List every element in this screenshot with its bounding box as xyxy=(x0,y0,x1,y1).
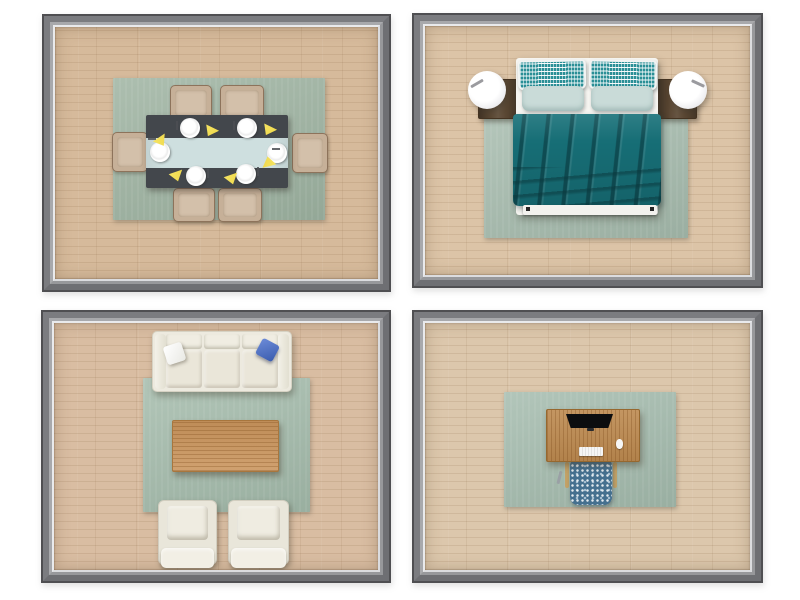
wood-floor xyxy=(55,27,378,279)
office-chair xyxy=(570,458,612,505)
plate xyxy=(236,164,256,184)
foot-rail-corner xyxy=(650,207,654,211)
armchair-back-cushion xyxy=(161,548,214,568)
living-room-panel xyxy=(41,310,391,583)
teal-blanket xyxy=(513,114,661,206)
cutlery-icon xyxy=(272,148,280,150)
monitor-stand xyxy=(587,428,594,431)
plate xyxy=(150,142,170,162)
dining-chair xyxy=(218,188,262,222)
armchair xyxy=(158,500,217,565)
bed-foot-rail xyxy=(523,205,657,215)
lamp-stem-icon xyxy=(691,79,705,88)
dining-room-panel xyxy=(42,14,391,292)
sofa-arm xyxy=(155,334,166,389)
dining-chair xyxy=(173,188,215,222)
wood-floor xyxy=(425,323,750,570)
chair-armrest xyxy=(613,462,617,488)
keyboard xyxy=(579,447,603,456)
armchair-seat xyxy=(237,506,280,540)
home-office-panel xyxy=(412,310,763,583)
wood-floor xyxy=(425,26,750,275)
plate xyxy=(180,118,200,138)
sofa xyxy=(152,331,292,392)
dining-chair xyxy=(112,132,148,172)
cutlery-icon xyxy=(148,138,156,140)
mouse xyxy=(616,439,623,449)
foot-rail-corner xyxy=(526,207,530,211)
chair-armrest xyxy=(565,462,569,488)
table-lamp xyxy=(468,71,506,109)
armchair xyxy=(228,500,289,565)
monitor xyxy=(566,414,613,428)
table-lamp xyxy=(669,71,707,109)
sofa-arm xyxy=(278,334,289,389)
coffee-table xyxy=(172,420,279,472)
plate xyxy=(237,118,257,138)
cutlery-icon xyxy=(233,121,235,130)
cutlery-icon xyxy=(257,167,259,176)
desk xyxy=(546,409,640,462)
dining-chair xyxy=(292,133,328,173)
plain-pillow xyxy=(591,86,653,111)
plain-pillow xyxy=(522,86,584,111)
plate xyxy=(186,166,206,186)
floor-plan-canvas: { "scene": { "type": "3d-floor-plan-grid… xyxy=(0,0,800,600)
armchair-seat xyxy=(167,506,208,540)
bedroom-panel xyxy=(412,13,763,288)
armchair-back-cushion xyxy=(231,548,286,568)
lamp-stem-icon xyxy=(470,79,484,89)
cutlery-icon xyxy=(207,169,209,178)
cutlery-icon xyxy=(176,121,178,130)
seat-cushion xyxy=(204,350,240,388)
wood-floor xyxy=(54,323,378,570)
back-cushion xyxy=(204,334,240,349)
